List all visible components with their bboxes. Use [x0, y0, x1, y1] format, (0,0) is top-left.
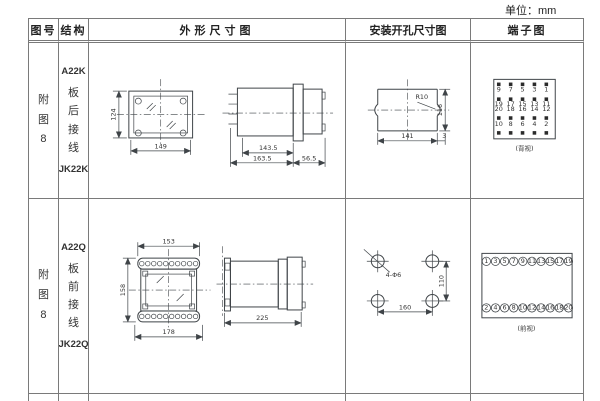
structure-cell-row1: A22K 板后接线 JK22K: [59, 43, 89, 199]
svg-text:10: 10: [519, 303, 527, 311]
dim-hole-height: 110: [438, 274, 446, 286]
svg-text:6: 6: [503, 303, 507, 311]
structure-cell-row2: A22Q 板前接线 JK22Q: [59, 199, 89, 394]
svg-text:1: 1: [544, 85, 548, 93]
model-bottom-row2: JK22Q: [59, 339, 89, 350]
header-mounting: 安装开孔尺寸图: [346, 19, 471, 43]
svg-text:16: 16: [546, 303, 554, 311]
dim-front-width: 149: [155, 142, 167, 150]
terminal-diagram-rear: 9753119171513112018161412108642 (背视): [471, 43, 583, 199]
svg-text:13: 13: [537, 256, 545, 264]
fig-no-row2: 附图8: [38, 266, 50, 325]
dim-total-depth: 163.5: [253, 154, 272, 162]
front-view: 153 158 178: [119, 237, 211, 340]
header-fig-no: 图号: [29, 19, 59, 43]
svg-text:19: 19: [564, 256, 572, 264]
wiring-row1: 板后接线: [68, 84, 80, 157]
outline-drawing-a22q: 153 158 178 225: [89, 199, 345, 394]
svg-text:8: 8: [512, 303, 516, 311]
svg-text:2: 2: [544, 119, 548, 127]
side-view: 225: [217, 246, 314, 327]
dim-cutout-edge: 3: [442, 131, 446, 139]
fig-no-cell-row2: 附图8: [29, 199, 59, 394]
svg-text:12: 12: [542, 105, 550, 113]
svg-text:9: 9: [497, 85, 501, 93]
header-outline: 外形尺寸图: [89, 19, 346, 43]
svg-text:10: 10: [495, 119, 503, 127]
dim-body-depth: 143.5: [259, 143, 278, 151]
svg-text:8: 8: [509, 119, 513, 127]
dim-cutout-width: 141: [401, 131, 413, 139]
svg-text:3: 3: [493, 256, 497, 264]
outline-drawing-a22k: 124 149 143.5 163.5: [89, 43, 345, 199]
dim-hole-width: 160: [399, 303, 411, 311]
svg-text:14: 14: [537, 303, 545, 311]
svg-text:1: 1: [484, 256, 488, 264]
fig-no-cell-row1: 附图8: [29, 43, 59, 199]
outline-cell-row1: 124 149 143.5 163.5: [89, 43, 346, 199]
terminal-caption-front: (前视): [518, 323, 536, 332]
model-bottom-row1: JK22K: [59, 164, 88, 175]
terminal-cell-row1: 9753119171513112018161412108642 (背视): [471, 43, 584, 199]
dim-front-height: 124: [109, 108, 117, 120]
svg-text:18: 18: [507, 105, 515, 113]
svg-text:3: 3: [532, 85, 536, 93]
svg-text:7: 7: [509, 85, 513, 93]
dim-cutout-height: 116: [436, 103, 444, 115]
svg-text:2: 2: [484, 303, 488, 311]
dim-top-width: 153: [163, 237, 175, 245]
mounting-cell-row2: 4-Φ6 160 110: [346, 199, 471, 394]
svg-text:6: 6: [520, 119, 524, 127]
outline-cell-row2: 153 158 178 225: [89, 199, 346, 394]
svg-text:12: 12: [528, 303, 536, 311]
svg-text:9: 9: [521, 256, 525, 264]
svg-text:5: 5: [520, 85, 524, 93]
svg-text:18: 18: [555, 303, 563, 311]
hole-dimensions: 160 110: [378, 261, 450, 316]
cutout-dimensions: 141 116 3: [378, 89, 450, 145]
unit-label: 单位：mm: [505, 2, 556, 18]
hole-size-label: 4-Φ6: [386, 271, 402, 279]
terminal-grid: 9753119171513112018161412108642: [495, 82, 551, 134]
spec-sheet-page: { "unit_label": "单位：mm", "colors": {"ink…: [0, 0, 600, 400]
mounting-drawing-a22k: R10 141 116 3: [346, 43, 470, 199]
svg-text:14: 14: [530, 105, 538, 113]
terminal-diagram-front: 1357911131517192468101214161820 (前视): [471, 199, 583, 394]
dim-depth: 225: [256, 313, 268, 321]
dim-front-height: 158: [119, 283, 127, 295]
svg-text:17: 17: [555, 256, 563, 264]
svg-text:7: 7: [512, 256, 516, 264]
svg-text:4: 4: [532, 119, 536, 127]
side-view: 143.5 163.5 56.5: [222, 84, 333, 167]
front-view: 124 149: [109, 79, 204, 155]
svg-text:20: 20: [564, 303, 572, 311]
svg-text:11: 11: [528, 256, 536, 264]
header-structure: 结构: [59, 19, 89, 43]
header-terminal: 端子图: [471, 19, 584, 43]
spec-table: 图号 结构 外形尺寸图 安装开孔尺寸图 端子图 附图8 A22K 板后接线 JK…: [28, 18, 584, 401]
svg-text:5: 5: [503, 256, 507, 264]
mounting-drawing-a22q: 4-Φ6 160 110: [346, 199, 470, 394]
terminal-cell-row2: 1357911131517192468101214161820 (前视): [471, 199, 584, 394]
fig-no-row1: 附图8: [38, 91, 50, 150]
mounting-cell-row1: R10 141 116 3: [346, 43, 471, 199]
svg-text:4: 4: [493, 303, 497, 311]
dim-bottom-width: 178: [163, 327, 175, 335]
wiring-row2: 板前接线: [68, 260, 80, 333]
radius-label: R10: [415, 93, 428, 101]
terminal-caption-rear: (背视): [516, 143, 534, 152]
svg-text:15: 15: [546, 256, 554, 264]
svg-text:16: 16: [518, 105, 526, 113]
svg-text:20: 20: [495, 105, 503, 113]
model-top-row2: A22Q: [61, 242, 86, 253]
model-top-row1: A22K: [61, 66, 85, 77]
dim-rear-depth: 56.5: [302, 154, 316, 162]
terminal-circles: 1357911131517192468101214161820: [482, 256, 572, 311]
